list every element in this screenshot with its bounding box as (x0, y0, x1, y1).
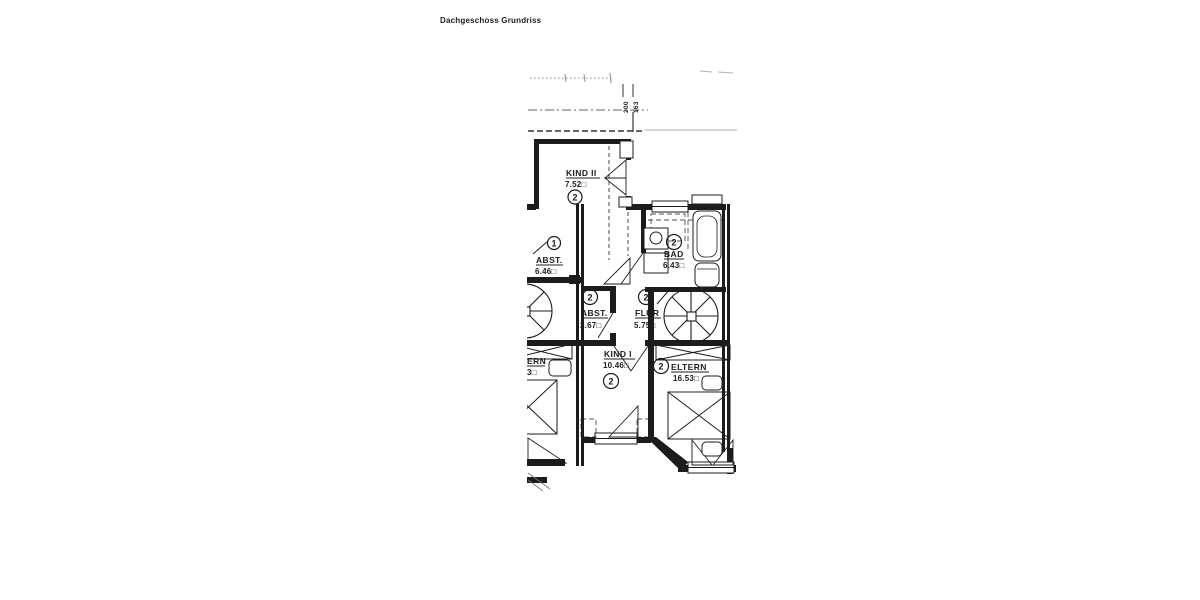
room-label-bad: 2 BAD 6.43□ (663, 235, 684, 271)
hall-door-swing (604, 258, 630, 284)
room-label-abst1: 1 ABST. 6.46□ (533, 237, 563, 277)
stairs (498, 284, 718, 343)
bad-door-swing (621, 253, 643, 284)
floorplan-page: Dachgeschoss Grundriss 200 163 (0, 0, 1200, 600)
room-area: 7.52□ (565, 180, 586, 189)
unit-number: 2 (658, 362, 663, 372)
room-name: ABST. (581, 308, 608, 318)
room-label-eltern: 2 ELTERN 16.53□ (654, 359, 710, 384)
unit-number: 1 (551, 239, 556, 249)
room-name: ERN (527, 356, 546, 366)
nightstand (702, 376, 722, 390)
wardrobe-eltern (656, 345, 730, 360)
door-frame-block (619, 197, 632, 207)
toilet-icon (695, 263, 719, 287)
radiator (692, 195, 722, 204)
dimension-labels: 200 163 (623, 101, 640, 113)
room-name: BAD (664, 249, 684, 259)
room-area: 2.67□ (580, 321, 601, 330)
kind2-door-swing (605, 160, 626, 178)
spiral-stair-right (664, 289, 718, 343)
kind1-window-swing (609, 406, 638, 437)
nightstand (549, 360, 571, 376)
bed-neighbor (500, 380, 557, 434)
page-title: Dachgeschoss Grundriss (440, 16, 542, 25)
unit-number: 2 (572, 193, 577, 203)
dimension-value-lower: 163 (633, 101, 640, 113)
walls (527, 139, 736, 483)
room-area: 10.46□ (603, 361, 629, 370)
unit-number: 2 (671, 238, 676, 248)
room-area: 16.53□ (673, 374, 699, 383)
dimension-value-upper: 200 (623, 101, 630, 113)
room-label-kind1: KIND I 10.46□ 2 (603, 349, 635, 389)
room-name: ABST. (536, 255, 563, 265)
room-name: FLUR (635, 308, 659, 318)
room-area: 6.43□ (663, 261, 684, 270)
room-area: 5.75□ (634, 321, 655, 330)
room-name: ELTERN (671, 362, 707, 372)
spiral-stair-left (498, 284, 552, 338)
door-frame-block (620, 141, 633, 158)
kind2-door-swing (605, 178, 626, 195)
room-area: 6.46□ (535, 267, 556, 276)
bed-eltern (668, 392, 730, 439)
unit-number: 2 (587, 293, 592, 303)
room-name: KIND I (604, 349, 632, 359)
room-area: 3□ (527, 368, 537, 377)
room-label-abst2: 2 ABST. 2.67□ (580, 290, 608, 331)
sink-icon (644, 228, 668, 249)
nightstand (702, 442, 722, 456)
unit-number: 2 (608, 377, 613, 387)
bathtub-icon (693, 211, 721, 261)
room-name: KIND II (566, 168, 597, 178)
room-label-kind2: KIND II 7.52□ 2 (565, 168, 600, 204)
floorplan-drawing: Dachgeschoss Grundriss 200 163 (0, 0, 1200, 600)
room-label-neighbor-partial: ERN 3□ (527, 356, 546, 377)
unit-number: 2 (643, 293, 648, 303)
